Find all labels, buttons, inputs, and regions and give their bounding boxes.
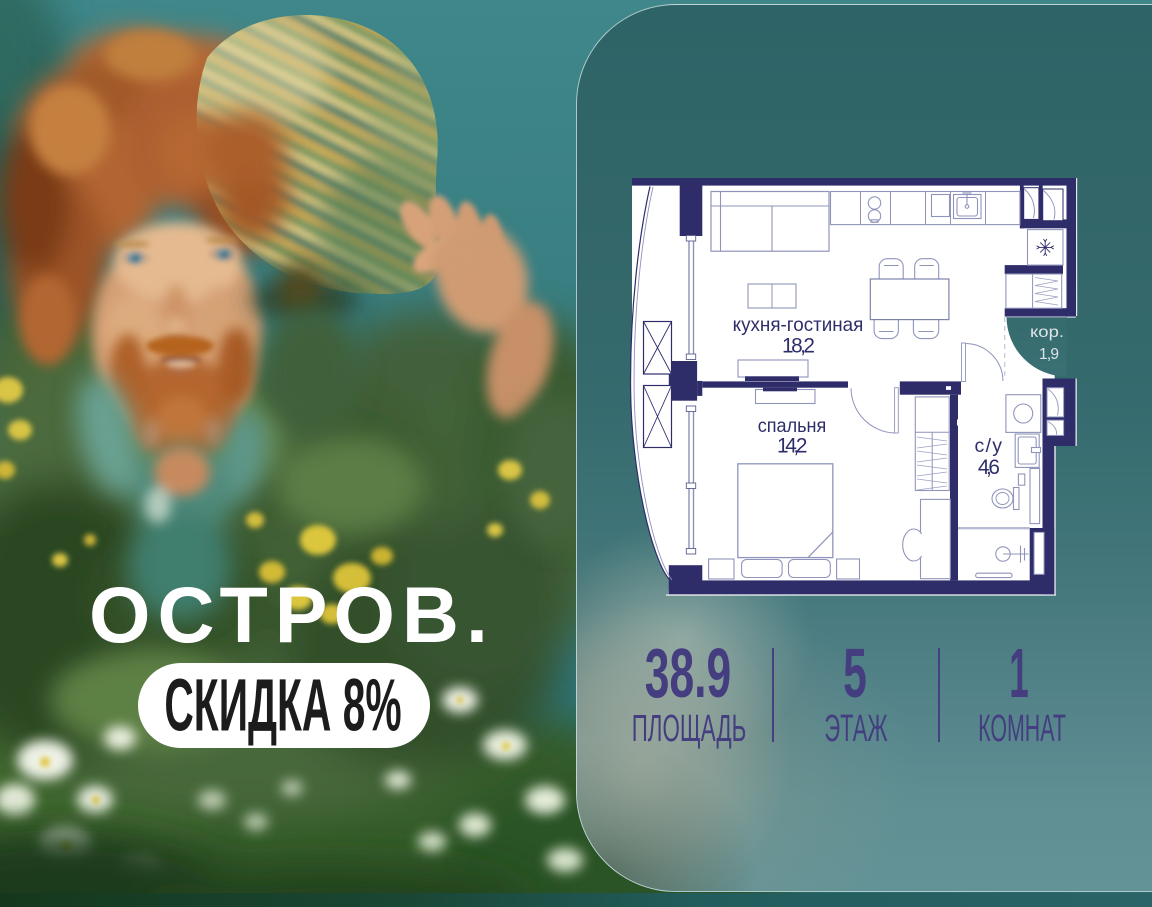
svg-text:14,2: 14,2: [777, 434, 808, 457]
svg-text:кухня-гостиная: кухня-гостиная: [733, 314, 864, 336]
svg-text:кор.: кор.: [1030, 324, 1064, 341]
svg-text:1,9: 1,9: [1039, 346, 1059, 363]
svg-text:4,6: 4,6: [978, 456, 1000, 479]
svg-text:18,2: 18,2: [782, 335, 815, 358]
svg-text:с/у: с/у: [975, 435, 1003, 457]
